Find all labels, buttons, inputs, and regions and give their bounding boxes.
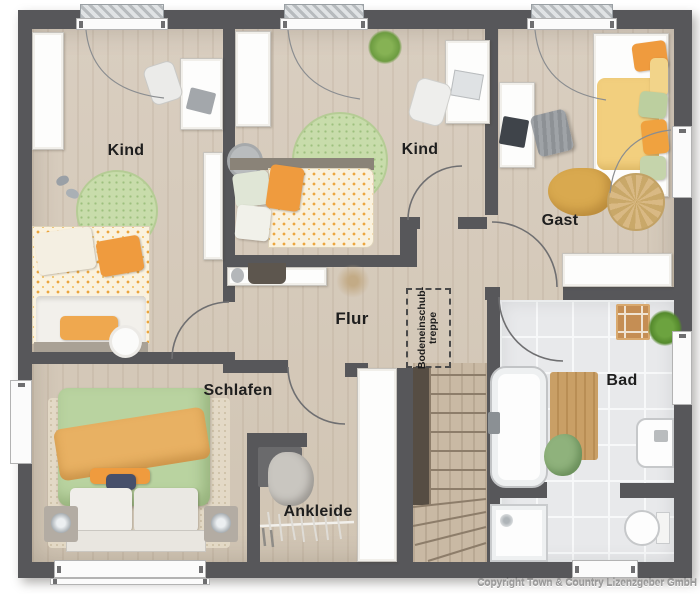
flur-bag xyxy=(248,263,286,284)
room-label-kind1: Kind xyxy=(108,142,145,160)
wall-gast-south-west xyxy=(485,287,500,300)
washbasin-tap xyxy=(654,430,668,442)
wall-ankleide-stairs xyxy=(397,368,413,562)
dormer-hatch-2 xyxy=(284,4,364,19)
toilet-bowl xyxy=(624,510,660,546)
bath-wood-box xyxy=(616,304,650,340)
window-top-3 xyxy=(527,18,617,30)
window-right-bad xyxy=(672,331,692,405)
nightstand-left-knob xyxy=(51,513,71,533)
kind2-wardrobe xyxy=(235,31,271,127)
gast-throw-blanket xyxy=(548,168,612,216)
room-label-gast: Gast xyxy=(542,212,579,230)
wall-flur-schlafen-west xyxy=(223,360,288,373)
kind1-pillow-orange-2 xyxy=(60,316,118,340)
window-right-gast xyxy=(672,126,692,198)
gast-woven-rug xyxy=(607,173,665,231)
room-label-schlafen: Schlafen xyxy=(203,382,272,400)
stair-void xyxy=(413,367,430,505)
wall-gast-bad xyxy=(563,287,674,300)
wall-wc-partition xyxy=(620,483,674,498)
shower xyxy=(490,504,548,562)
room-label-ankleide: Ankleide xyxy=(283,503,352,521)
wall-kind2-south-east xyxy=(458,217,487,229)
kind1-pillow-orange xyxy=(95,234,145,277)
bathtub-faucet xyxy=(488,412,500,434)
room-label-bad: Bad xyxy=(606,372,637,390)
kind2-pillow-white xyxy=(234,204,271,241)
wall-kind2-south-west xyxy=(405,217,420,229)
kind2-pillow-orange xyxy=(265,164,305,212)
plant-decor xyxy=(368,30,402,64)
washbasin xyxy=(636,418,674,468)
schlafen-bed-head xyxy=(66,530,206,552)
schlafen-pillow-white-1 xyxy=(70,488,132,532)
dried-plant-decor xyxy=(336,264,370,298)
attic-stairs-marker: Bodeneinschub- treppe xyxy=(406,288,451,368)
nightstand-right-knob xyxy=(211,513,231,533)
kind1-pillow-white xyxy=(33,226,96,276)
window-top-1 xyxy=(76,18,168,30)
dormer-hatch-3 xyxy=(531,4,613,19)
flower-stool-decor xyxy=(112,328,139,355)
schlafen-pillow-white-2 xyxy=(134,488,198,532)
shower-drain xyxy=(500,514,513,527)
flur-decor-item xyxy=(231,268,244,283)
kind1-wardrobe-2 xyxy=(203,152,223,260)
dormer-hatch-1 xyxy=(80,4,164,19)
room-label-kind2: Kind xyxy=(402,141,439,159)
room-label-flur: Flur xyxy=(335,309,368,329)
kind2-laptop xyxy=(450,70,484,101)
attic-stairs-label: Bodeneinschub- treppe xyxy=(418,287,440,369)
bath-towels-green xyxy=(544,434,582,476)
gast-sideboard xyxy=(562,253,672,287)
gast-pillow-green xyxy=(638,91,669,120)
gast-laptop xyxy=(499,116,529,148)
floor-plan: Bodeneinschub- treppe Kind Kind Gast Flu… xyxy=(0,0,700,594)
window-bottom-bad xyxy=(572,560,638,578)
gast-pillow-orange-2 xyxy=(640,119,669,156)
window-left-schlafen xyxy=(10,380,32,464)
gast-pillow-yellow xyxy=(650,58,668,96)
window-top-2 xyxy=(280,18,368,30)
kind1-wardrobe xyxy=(32,32,64,150)
built-in-wardrobe-column xyxy=(357,368,397,562)
window-bottom-schlafen-sill xyxy=(50,578,210,585)
window-bottom-schlafen xyxy=(54,560,206,578)
ankleide-clothes-pile xyxy=(268,452,314,506)
copyright-text: Copyright Town & Country Lizenzgeber Gmb… xyxy=(477,578,697,589)
